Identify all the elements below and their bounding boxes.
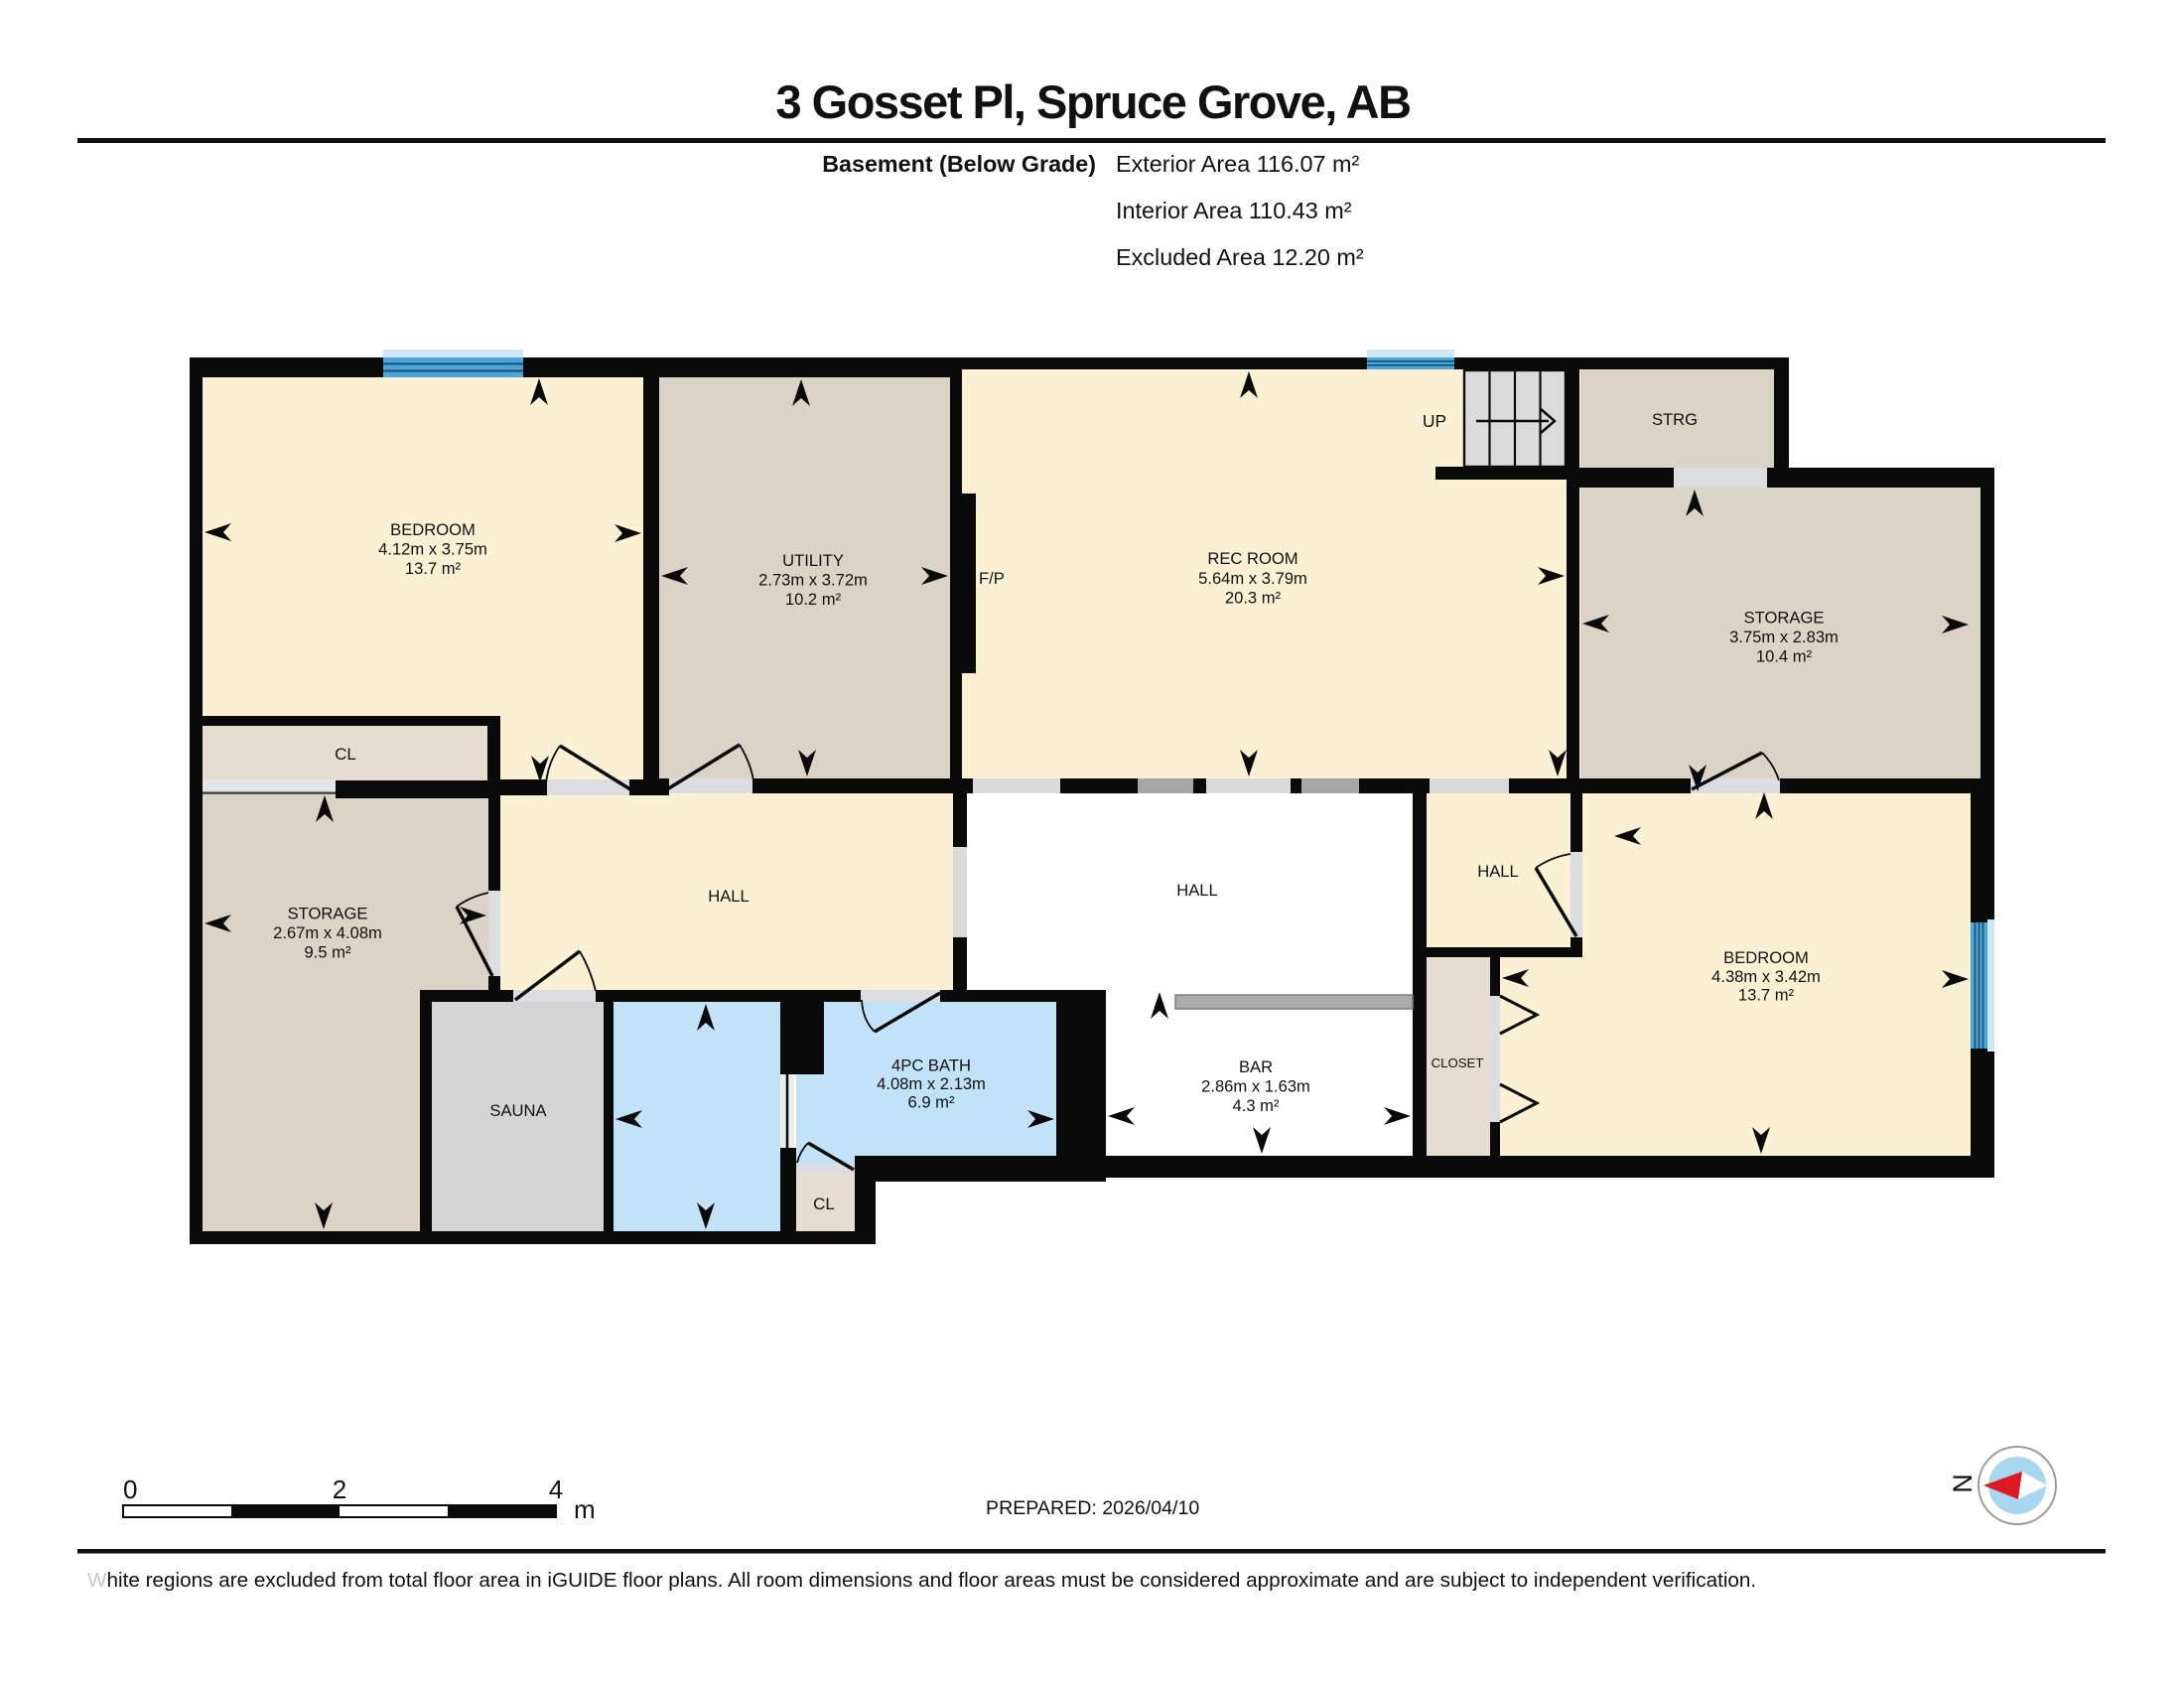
svg-text:UP: UP (1423, 411, 1446, 431)
svg-text:F/P: F/P (979, 569, 1005, 588)
svg-text:UTILITY: UTILITY (782, 551, 844, 570)
svg-text:Exterior Area 116.07 m²: Exterior Area 116.07 m² (1116, 151, 1359, 177)
svg-text:STORAGE: STORAGE (288, 905, 368, 923)
svg-text:5.64m x 3.79m: 5.64m x 3.79m (1198, 569, 1307, 588)
svg-text:2: 2 (333, 1475, 346, 1504)
svg-text:BEDROOM: BEDROOM (1723, 948, 1809, 967)
svg-text:3.75m x 2.83m: 3.75m x 2.83m (1729, 628, 1839, 646)
svg-text:SAUNA: SAUNA (489, 1101, 547, 1120)
svg-text:4.12m x 3.75m: 4.12m x 3.75m (378, 540, 487, 559)
svg-text:BEDROOM: BEDROOM (390, 520, 476, 539)
svg-text:HALL: HALL (1477, 862, 1519, 881)
svg-text:0: 0 (123, 1475, 137, 1504)
svg-text:CLOSET: CLOSET (1432, 1055, 1484, 1070)
svg-text:White regions are excluded fro: White regions are excluded from total fl… (87, 1569, 1756, 1592)
svg-text:REC ROOM: REC ROOM (1207, 549, 1297, 568)
svg-text:CL: CL (335, 745, 356, 764)
svg-text:10.4 m²: 10.4 m² (1756, 647, 1813, 666)
svg-text:2.86m x 1.63m: 2.86m x 1.63m (1201, 1077, 1310, 1096)
svg-text:10.2 m²: 10.2 m² (785, 590, 842, 609)
svg-text:HALL: HALL (708, 887, 750, 906)
svg-text:Basement (Below Grade): Basement (Below Grade) (822, 151, 1096, 177)
svg-text:2.67m x 4.08m: 2.67m x 4.08m (273, 923, 382, 942)
svg-text:4.08m x 2.13m: 4.08m x 2.13m (877, 1074, 986, 1093)
svg-text:CL: CL (813, 1195, 835, 1213)
svg-text:9.5 m²: 9.5 m² (304, 943, 351, 962)
svg-text:13.7 m²: 13.7 m² (1738, 986, 1795, 1005)
svg-text:Interior Area 110.43 m²: Interior Area 110.43 m² (1116, 198, 1352, 223)
svg-text:4: 4 (549, 1475, 563, 1504)
svg-text:HALL: HALL (1176, 881, 1218, 900)
svg-text:4.38m x 3.42m: 4.38m x 3.42m (1711, 967, 1821, 986)
svg-text:N: N (1948, 1474, 1978, 1493)
svg-text:Excluded Area 12.20 m²: Excluded Area 12.20 m² (1116, 244, 1364, 270)
svg-text:m: m (574, 1494, 596, 1524)
svg-text:4.3 m²: 4.3 m² (1232, 1096, 1280, 1115)
svg-text:6.9 m²: 6.9 m² (907, 1093, 955, 1112)
svg-text:BAR: BAR (1239, 1057, 1273, 1076)
svg-text:20.3 m²: 20.3 m² (1225, 589, 1282, 608)
svg-text:13.7 m²: 13.7 m² (405, 559, 462, 578)
svg-text:STRG: STRG (1652, 410, 1698, 429)
svg-text:2.73m x 3.72m: 2.73m x 3.72m (758, 571, 868, 590)
svg-text:PREPARED: 2026/04/10: PREPARED: 2026/04/10 (986, 1497, 1199, 1519)
svg-text:STORAGE: STORAGE (1744, 609, 1825, 628)
svg-text:3 Gosset Pl, Spruce Grove, AB: 3 Gosset Pl, Spruce Grove, AB (775, 75, 1410, 128)
svg-text:4PC BATH: 4PC BATH (891, 1056, 971, 1075)
